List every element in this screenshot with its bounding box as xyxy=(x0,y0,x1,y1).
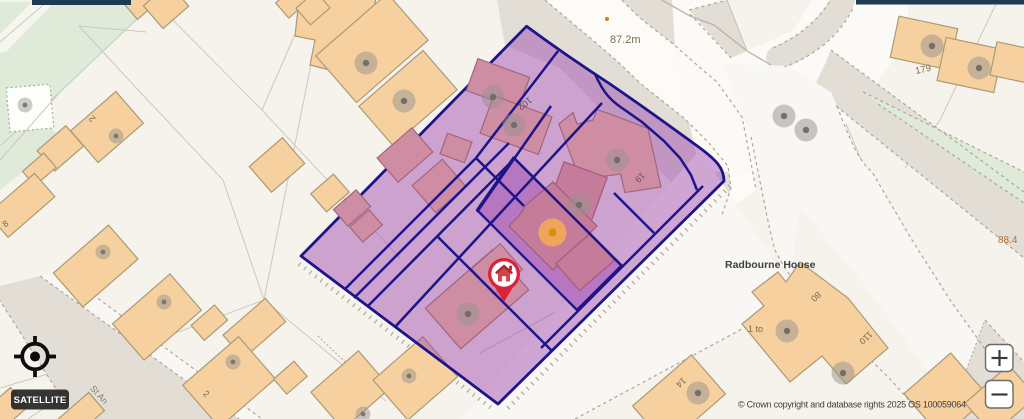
svg-text:88.4: 88.4 xyxy=(998,235,1018,246)
svg-text:SATELLITE: SATELLITE xyxy=(14,395,67,406)
svg-text:87.2m: 87.2m xyxy=(610,34,641,46)
svg-text:Radbourne House: Radbourne House xyxy=(725,259,816,271)
svg-text:© Crown copyright and database: © Crown copyright and database rights 20… xyxy=(738,400,966,410)
svg-text:1 to: 1 to xyxy=(748,324,763,334)
